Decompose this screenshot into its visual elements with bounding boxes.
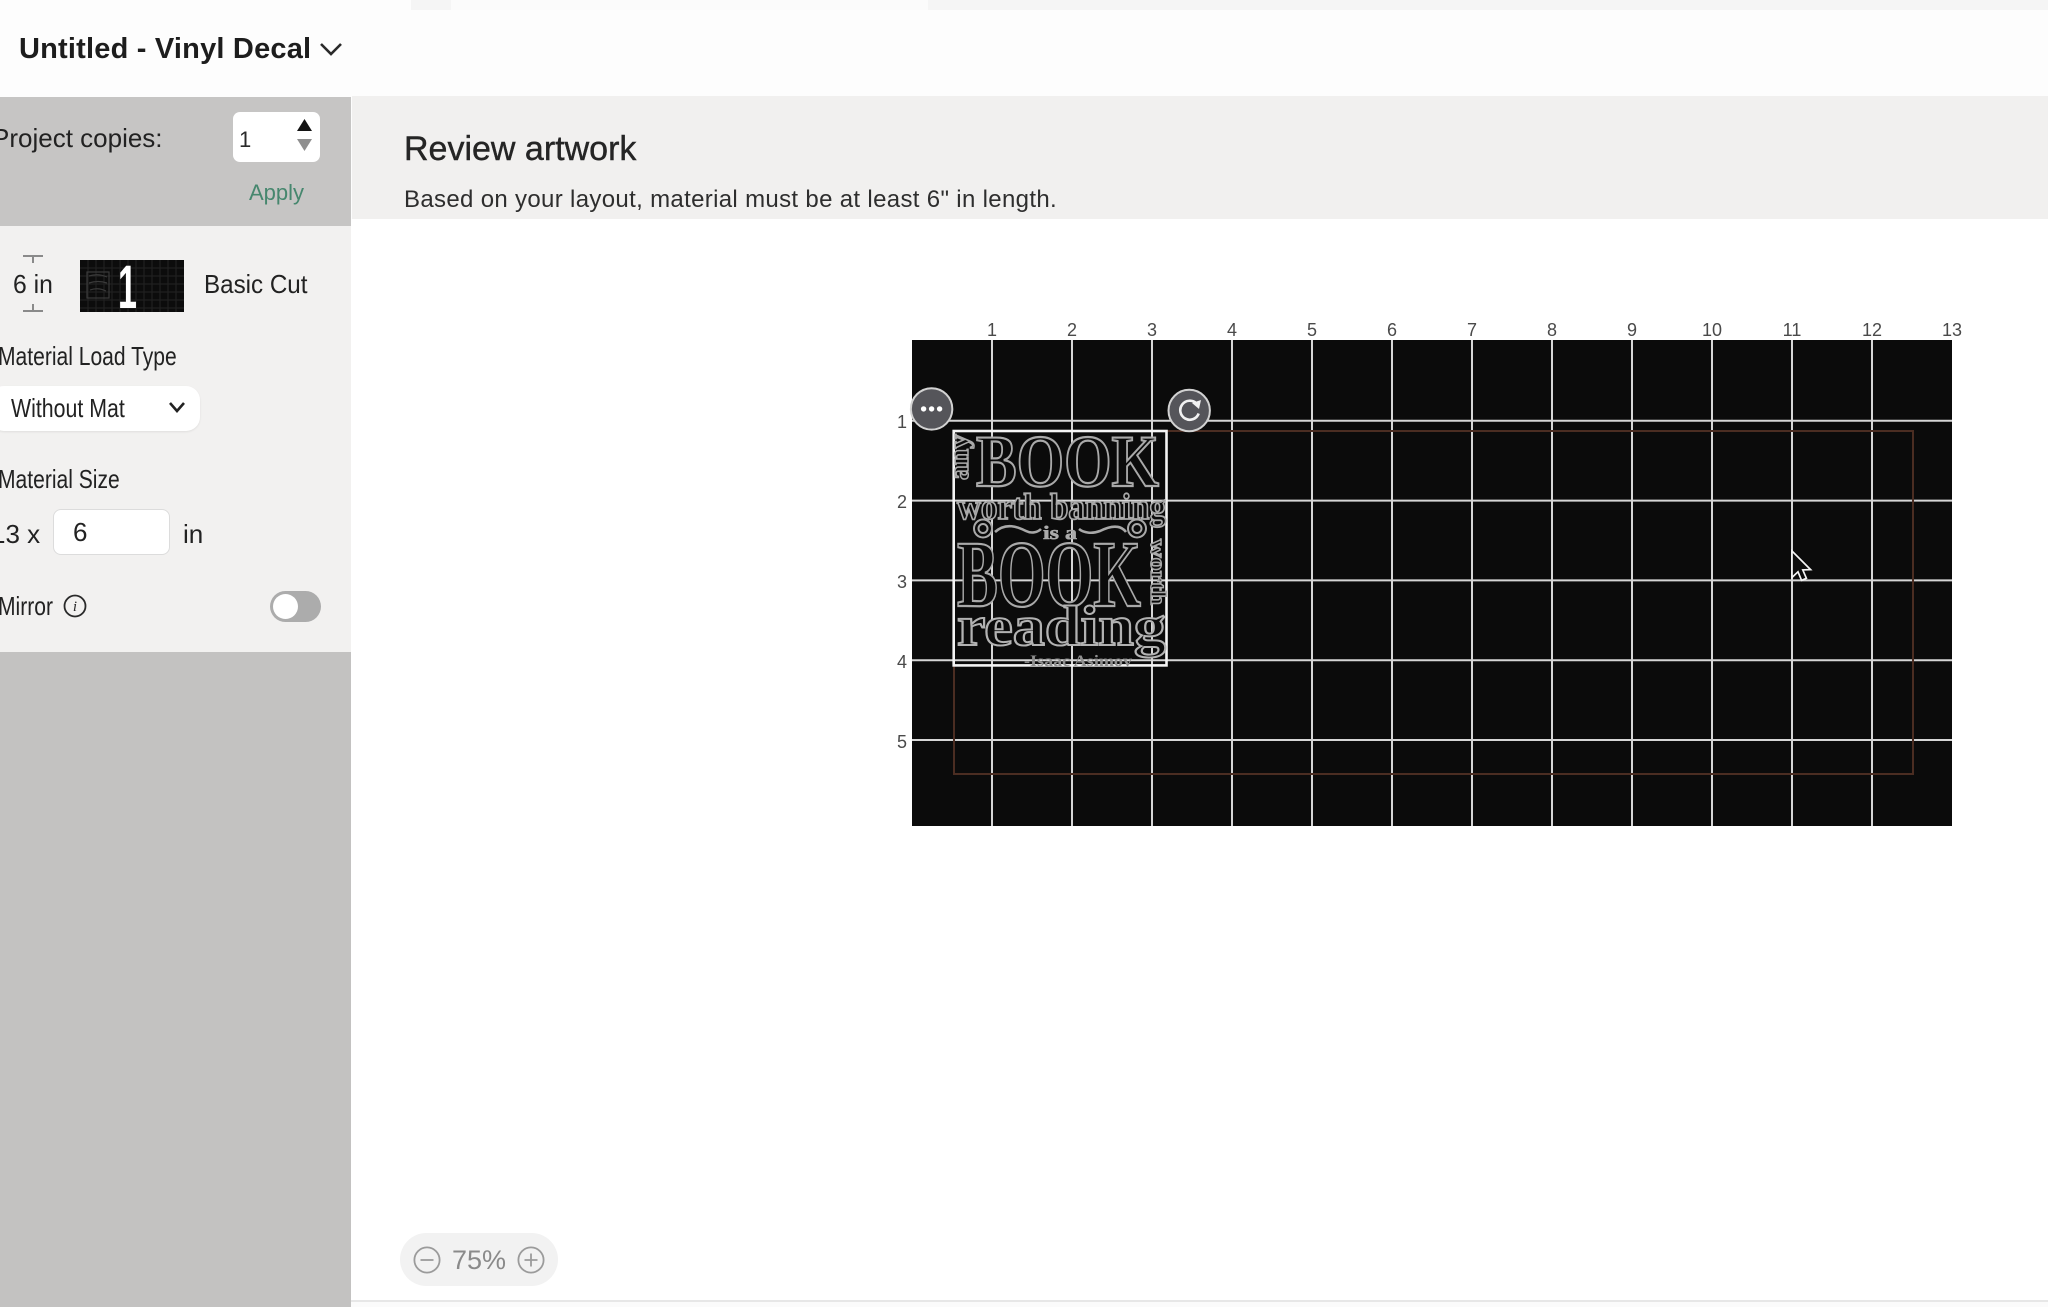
svg-text:4: 4 [1227, 320, 1237, 340]
svg-text:13: 13 [1942, 320, 1962, 340]
svg-text:3: 3 [897, 572, 907, 592]
svg-text:-Isaac Asimov: -Isaac Asimov [1024, 653, 1132, 670]
svg-text:3: 3 [1147, 320, 1157, 340]
svg-text:4: 4 [897, 652, 907, 672]
svg-text:7: 7 [1467, 320, 1477, 340]
svg-text:reading: reading [957, 595, 1166, 658]
svg-text:10: 10 [1702, 320, 1722, 340]
svg-text:2: 2 [1067, 320, 1077, 340]
svg-text:6: 6 [1387, 320, 1397, 340]
svg-text:1: 1 [897, 412, 907, 432]
svg-text:1: 1 [987, 320, 997, 340]
svg-text:2: 2 [897, 492, 907, 512]
svg-text:5: 5 [1307, 320, 1317, 340]
svg-text:8: 8 [1547, 320, 1557, 340]
svg-text:9: 9 [1627, 320, 1637, 340]
svg-text:11: 11 [1783, 320, 1802, 340]
svg-text:5: 5 [897, 732, 907, 752]
svg-text:12: 12 [1862, 320, 1882, 340]
svg-text:any: any [944, 434, 975, 480]
svg-text:1: 1 [118, 260, 137, 312]
svg-text:i: i [73, 599, 77, 615]
